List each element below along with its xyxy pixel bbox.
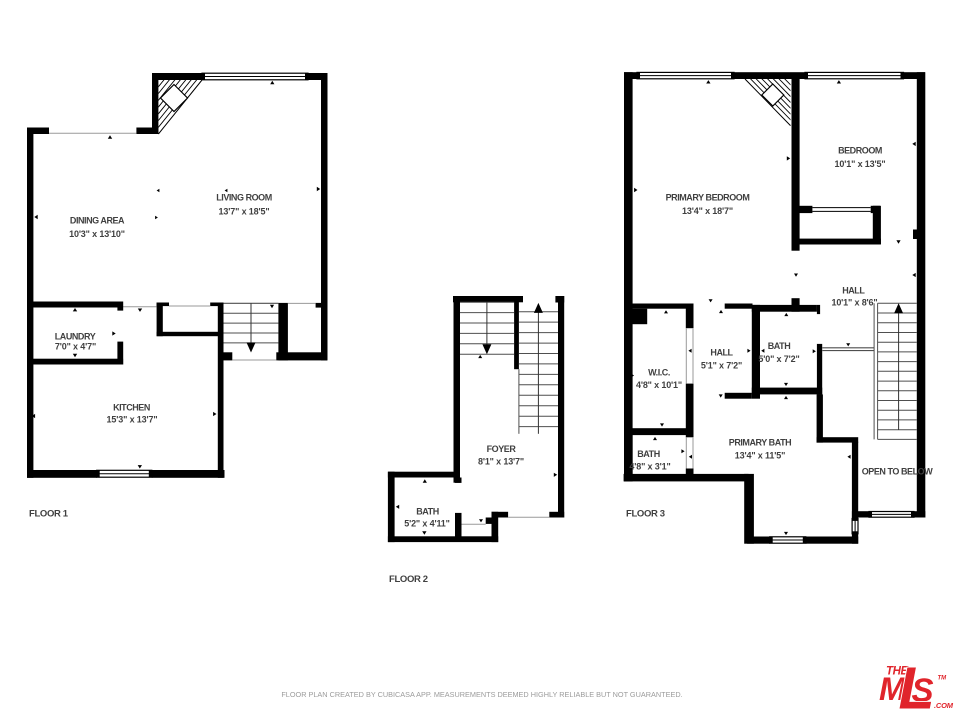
svg-text:5'2" x 4'11": 5'2" x 4'11" [404, 519, 450, 529]
svg-text:LIVING ROOM: LIVING ROOM [216, 193, 272, 203]
svg-text:FOYER: FOYER [487, 444, 517, 454]
svg-text:15'3" x 13'7": 15'3" x 13'7" [107, 415, 158, 425]
svg-text:4'8" x 10'1": 4'8" x 10'1" [636, 380, 682, 390]
svg-text:HALL: HALL [710, 348, 733, 358]
svg-text:8'1" x 13'7": 8'1" x 13'7" [478, 457, 524, 467]
svg-text:TM: TM [938, 676, 948, 682]
svg-text:LAUNDRY: LAUNDRY [55, 332, 96, 342]
svg-text:PRIMARY BATH: PRIMARY BATH [729, 438, 791, 448]
svg-text:5'0" x 7'2": 5'0" x 7'2" [758, 354, 799, 364]
svg-text:W.I.C.: W.I.C. [648, 368, 670, 378]
svg-text:13'4" x 18'7": 13'4" x 18'7" [682, 206, 733, 216]
svg-text:13'7" x 18'5": 13'7" x 18'5" [219, 207, 270, 217]
svg-text:7'0" x 4'7": 7'0" x 4'7" [55, 342, 96, 352]
svg-text:BATH: BATH [768, 341, 791, 351]
svg-text:10'3" x 13'10": 10'3" x 13'10" [69, 229, 125, 239]
svg-text:KITCHEN: KITCHEN [113, 403, 150, 413]
svg-text:FLOOR 2: FLOOR 2 [389, 574, 428, 585]
svg-text:.COM: .COM [934, 701, 954, 710]
svg-text:PRIMARY BEDROOM: PRIMARY BEDROOM [666, 193, 750, 203]
svg-text:OPEN TO BELOW: OPEN TO BELOW [862, 467, 933, 477]
svg-text:FLOOR 1: FLOOR 1 [29, 509, 69, 520]
svg-text:FLOOR PLAN CREATED BY CUBICASA: FLOOR PLAN CREATED BY CUBICASA APP. MEAS… [281, 690, 682, 699]
svg-text:4'8" x 3'1": 4'8" x 3'1" [629, 462, 670, 472]
svg-text:10'1" x 13'5": 10'1" x 13'5" [835, 159, 886, 169]
svg-text:BATH: BATH [416, 507, 439, 517]
svg-text:BEDROOM: BEDROOM [838, 146, 882, 156]
svg-text:10'1" x 8'6": 10'1" x 8'6" [831, 298, 877, 308]
svg-text:13'4" x 11'5": 13'4" x 11'5" [735, 451, 785, 461]
svg-text:BATH: BATH [637, 449, 660, 459]
svg-text:DINING AREA: DINING AREA [70, 216, 125, 226]
svg-text:5'1" x 7'2": 5'1" x 7'2" [701, 361, 742, 371]
svg-text:L: L [899, 655, 935, 720]
svg-text:HALL: HALL [842, 286, 865, 296]
svg-text:FLOOR 3: FLOOR 3 [626, 509, 665, 520]
